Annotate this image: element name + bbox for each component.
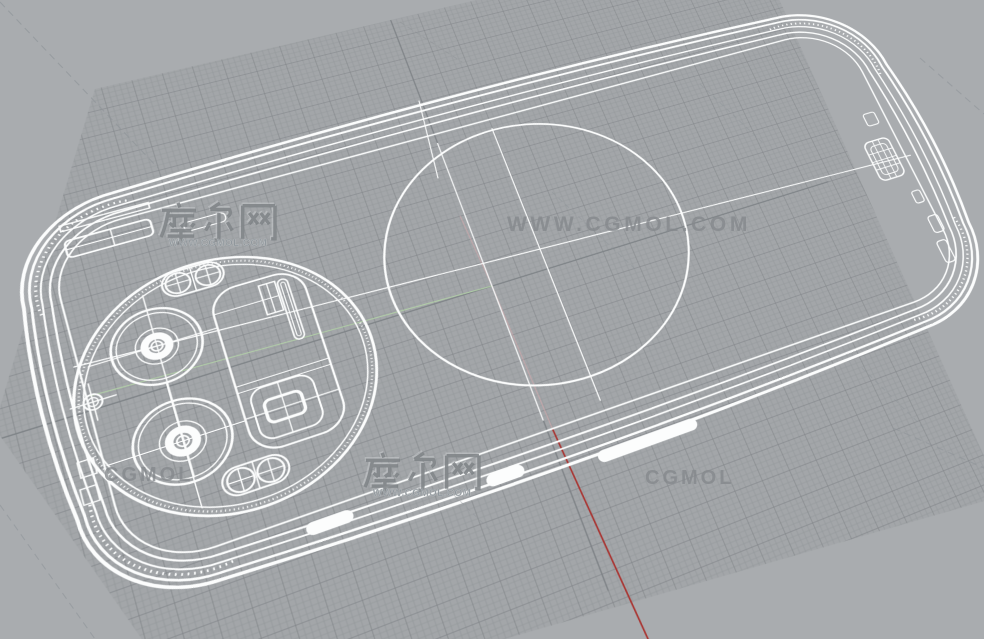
svg-text:WWW.CGMOL.COM: WWW.CGMOL.COM: [169, 238, 267, 249]
svg-text:WWW.CGMOL.COM: WWW.CGMOL.COM: [373, 488, 471, 499]
